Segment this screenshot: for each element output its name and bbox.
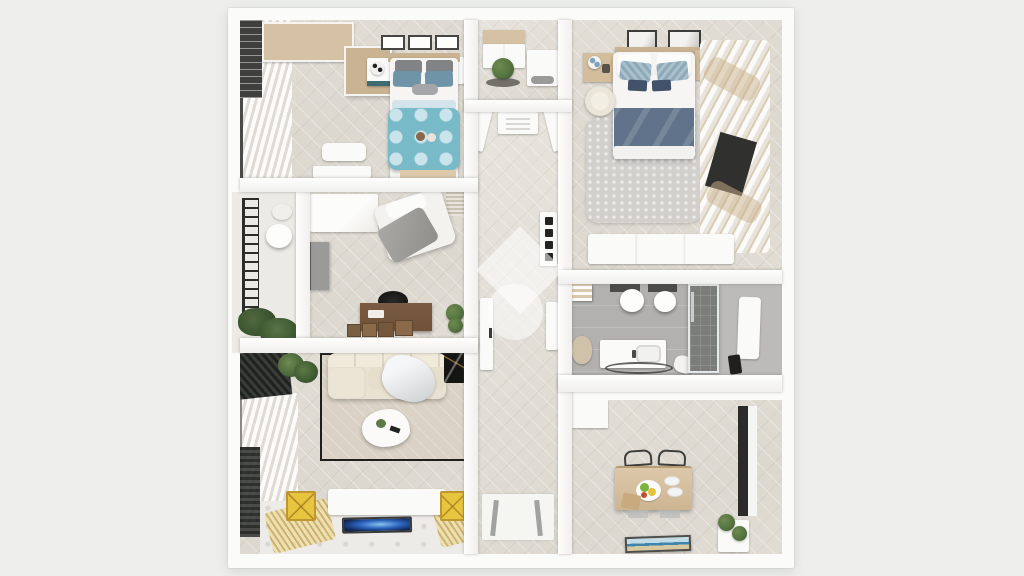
galaxy-tv [342, 516, 412, 533]
storage-crate [378, 322, 394, 337]
room-utility [478, 20, 558, 100]
intercom-switch [545, 229, 553, 237]
potted-plant [732, 526, 747, 541]
room-bathroom [572, 284, 782, 375]
plate [667, 487, 683, 497]
balcony-chair [272, 204, 292, 220]
corner-radiator [446, 192, 464, 216]
window-sill [748, 406, 757, 516]
potted-plant [492, 58, 514, 80]
leaning-mirror [737, 297, 761, 360]
table-plant [376, 419, 386, 428]
room-kitchen [572, 400, 782, 554]
teddy-bear [416, 132, 425, 141]
curtains [700, 40, 770, 253]
intercom-switch [545, 241, 553, 249]
tv-lowboard [328, 489, 446, 515]
wall-hung-toilet [620, 289, 644, 312]
faucet [632, 350, 636, 358]
wall-master-bath [558, 270, 782, 284]
nightstand-lamp [588, 56, 601, 69]
wall-office-left [296, 192, 310, 338]
room-living [240, 353, 464, 554]
low-dresser [313, 166, 371, 178]
cord-bath-mat [605, 362, 673, 374]
long-dresser [588, 234, 734, 264]
open-door [478, 112, 494, 152]
fruit-yellow [648, 488, 656, 496]
door-handle [489, 328, 492, 338]
room-bedroom-master [572, 20, 782, 270]
yellow-side-table [440, 491, 464, 521]
wall-frame [381, 35, 405, 50]
bidet [654, 291, 676, 312]
chair-under-table [628, 510, 648, 518]
shower-fixture [691, 292, 694, 322]
towel-shelf [572, 284, 592, 301]
washer-door [531, 76, 554, 84]
tall-plant [294, 361, 318, 383]
wire-chair [623, 449, 652, 467]
armchair-seat [591, 92, 609, 110]
watermark-circle [487, 284, 543, 340]
wardrobe [262, 22, 354, 62]
apartment-floorplan-render [0, 0, 1024, 576]
chair-under-table [660, 510, 680, 518]
wall-tv [308, 242, 329, 290]
room-bedroom-small [240, 20, 464, 178]
wall-frame [435, 35, 459, 50]
seascape-picture [625, 535, 692, 553]
bistro-table [266, 224, 292, 248]
room-office [308, 192, 464, 338]
potted-plant [448, 318, 463, 333]
yellow-side-table [286, 491, 316, 521]
nightstand-lamp [371, 62, 384, 75]
blanket-fold [614, 146, 694, 159]
vanity-desk [322, 143, 366, 161]
storage-crate [395, 320, 413, 336]
window-frame-dark [240, 20, 262, 98]
plate [664, 476, 680, 486]
bed-blanket [614, 108, 694, 149]
sink [636, 345, 661, 363]
storage-crate [347, 324, 361, 337]
desk-papers [368, 310, 384, 318]
open-door [542, 112, 558, 152]
pillow-navy [628, 80, 648, 92]
bed-foot-bench [400, 170, 456, 178]
black-stand [728, 354, 743, 374]
bathroom-door [546, 302, 558, 350]
pillow-navy [652, 80, 672, 92]
cabinet-top [483, 30, 525, 44]
curtain-fold [701, 54, 763, 103]
wall-utility-hall [464, 100, 572, 112]
wire-chair [658, 449, 687, 466]
pillow-lumbar [412, 84, 438, 95]
floor-mat [486, 78, 520, 87]
vent-grill [506, 118, 530, 130]
counter-block [572, 400, 608, 428]
fruit-red [641, 492, 647, 498]
intercom-switch [545, 217, 553, 225]
nightstand-decor [602, 64, 610, 73]
towel-pile [572, 336, 592, 364]
tall-window [738, 406, 748, 516]
nightstand-trim [367, 81, 391, 86]
dark-window-frame [240, 447, 260, 537]
wall-bedroom-office [240, 178, 478, 192]
wall-bath-kitchen [558, 375, 782, 392]
wall-office-living [240, 338, 478, 353]
sofa-chaise [330, 367, 366, 399]
coffee-table [362, 409, 410, 447]
wall-frame [408, 35, 432, 50]
storage-crate [362, 323, 377, 337]
marble-console [444, 353, 464, 383]
office-wardrobe [310, 194, 378, 232]
teddy-bear [427, 133, 436, 142]
